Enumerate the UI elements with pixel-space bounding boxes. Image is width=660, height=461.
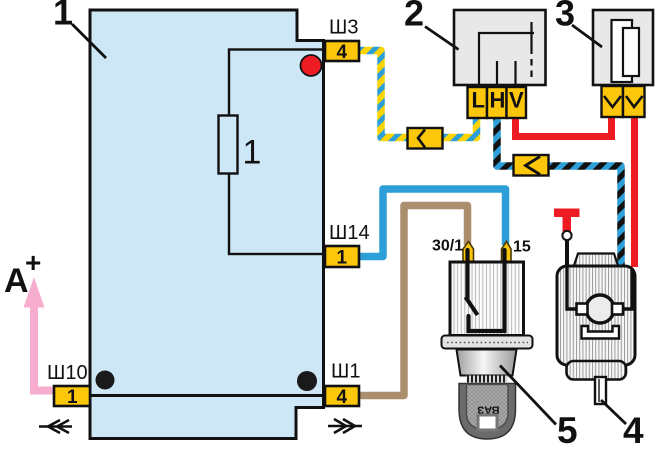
svg-text:3: 3 [555, 0, 575, 34]
svg-text:Ш14: Ш14 [329, 222, 370, 244]
svg-text:1: 1 [67, 387, 78, 408]
svg-text:4: 4 [623, 410, 644, 451]
svg-text:15: 15 [513, 239, 531, 256]
svg-text:4: 4 [337, 387, 348, 408]
svg-text:V: V [509, 88, 524, 113]
svg-text:Ш1: Ш1 [331, 361, 360, 383]
svg-text:2: 2 [404, 0, 424, 34]
svg-text:1: 1 [243, 134, 262, 172]
svg-text:4: 4 [337, 42, 348, 63]
svg-text:5: 5 [557, 410, 578, 451]
svg-text:1: 1 [53, 0, 73, 33]
svg-text:Ш10: Ш10 [47, 362, 88, 384]
svg-text:30/1: 30/1 [432, 238, 463, 255]
svg-text:1: 1 [337, 248, 348, 269]
svg-text:L: L [472, 88, 485, 113]
svg-text:Ш3: Ш3 [329, 17, 358, 39]
svg-text:+: + [25, 247, 41, 278]
svg-text:H: H [490, 88, 506, 113]
